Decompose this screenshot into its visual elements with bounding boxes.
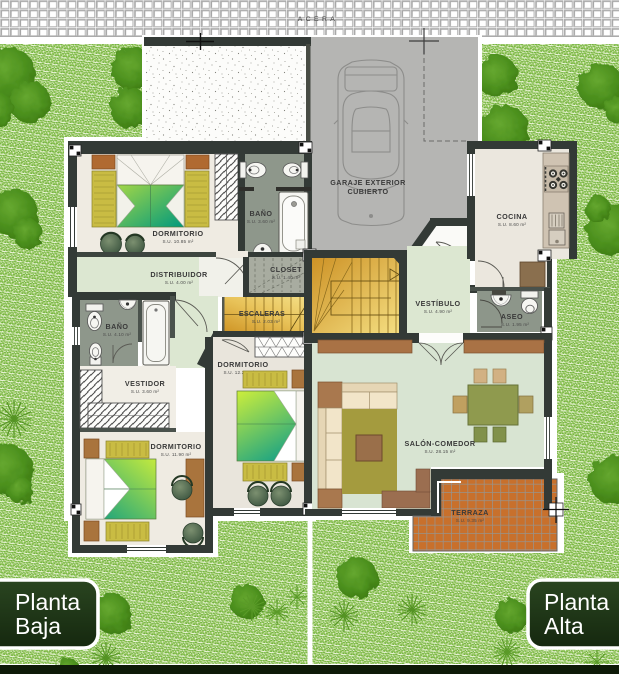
- svg-text:Baja: Baja: [15, 613, 61, 639]
- svg-text:Planta: Planta: [544, 589, 609, 615]
- svg-text:S.U. 28.15 m²: S.U. 28.15 m²: [425, 449, 456, 454]
- svg-text:S.U. 1.95 m²: S.U. 1.95 m²: [501, 322, 529, 327]
- svg-text:DORMITORIO: DORMITORIO: [217, 360, 268, 369]
- svg-text:CUBIERTO: CUBIERTO: [347, 187, 388, 196]
- svg-text:DISTRIBUIDOR: DISTRIBUIDOR: [150, 270, 208, 279]
- svg-text:S.U. 4.00 m²: S.U. 4.00 m²: [165, 280, 193, 285]
- svg-text:Planta: Planta: [15, 589, 80, 615]
- svg-text:S.U. 1.40 m²: S.U. 1.40 m²: [272, 275, 300, 280]
- svg-text:S.U. 8.60 m²: S.U. 8.60 m²: [498, 222, 526, 227]
- svg-text:S.U. 10.85 m²: S.U. 10.85 m²: [163, 239, 194, 244]
- svg-text:TERRAZA: TERRAZA: [451, 508, 489, 517]
- svg-text:S.U. 4.90 m²: S.U. 4.90 m²: [424, 309, 452, 314]
- svg-text:ESCALERAS: ESCALERAS: [239, 309, 285, 318]
- svg-text:CLOSET: CLOSET: [270, 265, 302, 274]
- svg-text:COCINA: COCINA: [496, 212, 527, 221]
- svg-text:GARAJE EXTERIOR: GARAJE EXTERIOR: [330, 178, 406, 187]
- svg-text:DORMITORIO: DORMITORIO: [152, 229, 203, 238]
- svg-text:SALÓN-COMEDOR: SALÓN-COMEDOR: [405, 439, 476, 448]
- svg-text:BAÑO: BAÑO: [250, 209, 273, 218]
- svg-text:S.U. 3.60 m²: S.U. 3.60 m²: [247, 219, 275, 224]
- svg-text:BAÑO: BAÑO: [106, 322, 129, 331]
- svg-text:S.U. 3.60 m²: S.U. 3.60 m²: [131, 389, 159, 394]
- svg-text:Alta: Alta: [544, 613, 584, 639]
- svg-text:VESTIDOR: VESTIDOR: [125, 379, 166, 388]
- svg-text:S.U. 11.90 m²: S.U. 11.90 m²: [161, 452, 192, 457]
- svg-text:S.U. 2.03 m²: S.U. 2.03 m²: [252, 319, 280, 324]
- svg-text:DORMITORIO: DORMITORIO: [150, 442, 201, 451]
- svg-text:S.U. 9.35 m²: S.U. 9.35 m²: [456, 518, 484, 523]
- svg-text:VESTÍBULO: VESTÍBULO: [415, 299, 460, 308]
- svg-text:ACERA: ACERA: [298, 16, 338, 23]
- svg-text:ASEO: ASEO: [501, 312, 523, 321]
- svg-text:S.U. 4.10 m²: S.U. 4.10 m²: [103, 332, 131, 337]
